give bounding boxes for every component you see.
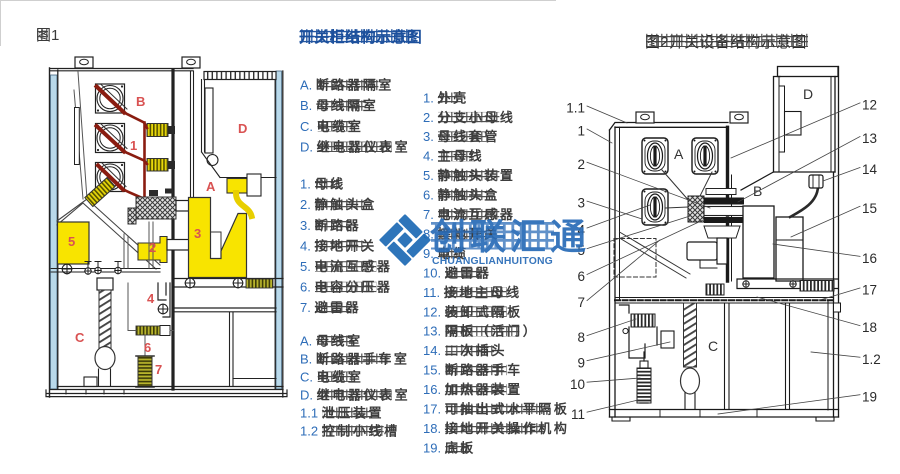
svg-text:A: A	[206, 179, 216, 194]
svg-text:18: 18	[862, 320, 877, 335]
svg-text:11: 11	[571, 407, 585, 422]
svg-text:C: C	[75, 330, 85, 345]
svg-text:1: 1	[577, 124, 585, 139]
svg-text:1: 1	[130, 138, 137, 153]
svg-text:17: 17	[862, 283, 877, 298]
svg-text:9: 9	[577, 355, 585, 370]
svg-text:2: 2	[577, 157, 585, 172]
svg-text:15: 15	[862, 201, 877, 216]
svg-text:8: 8	[577, 330, 585, 345]
svg-text:6: 6	[577, 269, 585, 284]
svg-text:D: D	[238, 121, 247, 136]
svg-text:7: 7	[155, 362, 162, 377]
svg-text:13: 13	[862, 131, 877, 146]
svg-text:10: 10	[570, 377, 585, 392]
svg-text:CHUANGLIANHUITONG: CHUANGLIANHUITONG	[432, 256, 553, 267]
svg-text:3: 3	[194, 226, 201, 241]
svg-text:C: C	[708, 338, 718, 354]
svg-text:3: 3	[577, 196, 585, 211]
svg-text:D: D	[803, 86, 813, 102]
svg-text:16: 16	[862, 251, 877, 266]
svg-text:6: 6	[144, 340, 151, 355]
svg-text:12: 12	[862, 98, 877, 113]
svg-text:1.2: 1.2	[862, 352, 881, 367]
svg-text:2: 2	[149, 240, 156, 255]
svg-text:4: 4	[147, 291, 155, 306]
svg-text:14: 14	[862, 162, 878, 177]
svg-text:B: B	[136, 94, 145, 109]
svg-text:1.1: 1.1	[566, 101, 585, 116]
svg-text:7: 7	[577, 295, 585, 310]
svg-text:19: 19	[862, 389, 877, 404]
svg-text:A: A	[674, 146, 684, 162]
svg-text:5: 5	[68, 234, 75, 249]
